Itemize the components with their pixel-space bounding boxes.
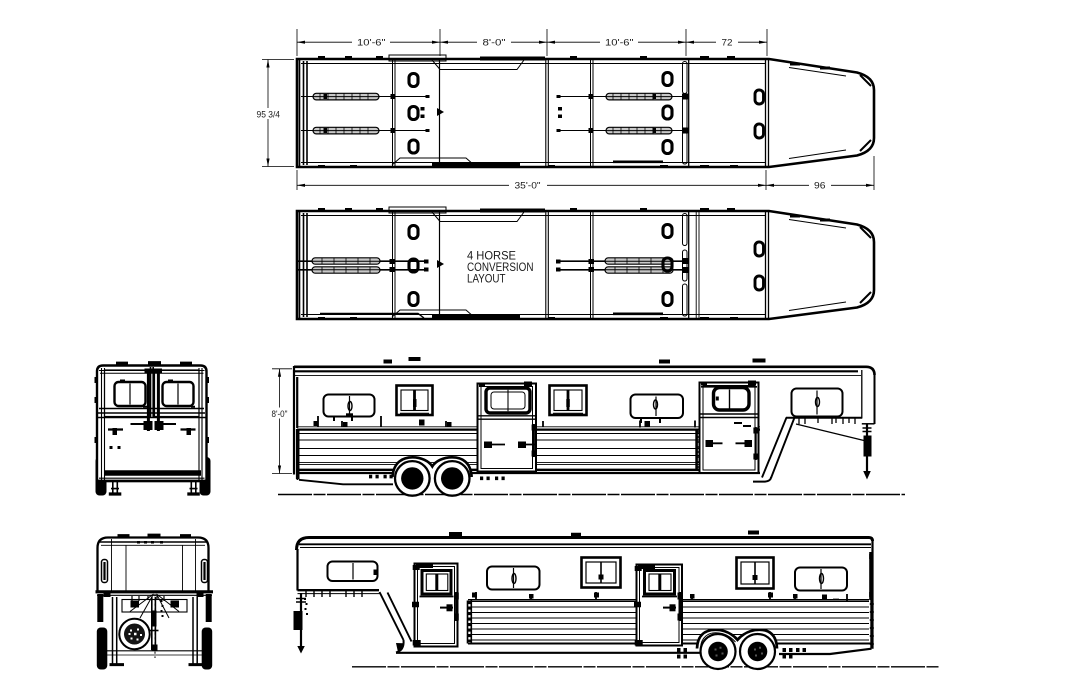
svg-text:LAYOUT: LAYOUT xyxy=(467,272,506,286)
svg-text:8'-0": 8'-0" xyxy=(272,409,288,420)
svg-text:95 3/4: 95 3/4 xyxy=(257,110,281,121)
svg-text:96: 96 xyxy=(814,181,826,192)
svg-text:10'-6": 10'-6" xyxy=(357,38,386,49)
svg-text:10'-6": 10'-6" xyxy=(605,38,634,49)
svg-text:72: 72 xyxy=(722,38,733,49)
svg-text:35'-0": 35'-0" xyxy=(515,181,541,192)
svg-text:8'-0": 8'-0" xyxy=(483,38,506,49)
